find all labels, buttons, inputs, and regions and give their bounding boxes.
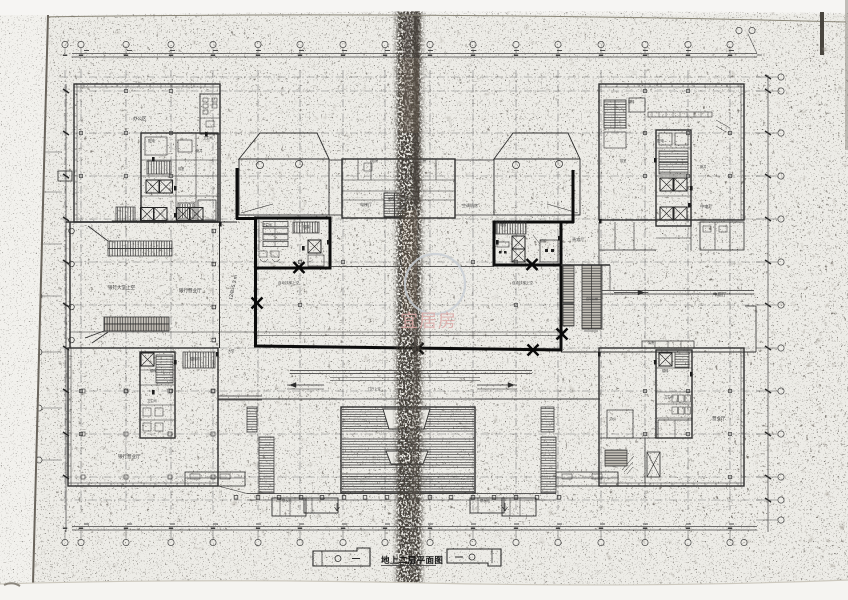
svg-text:楼梯: 楼梯 <box>540 238 547 243</box>
svg-text:自动扶梯上空: 自动扶梯上空 <box>512 280 533 285</box>
svg-text:地上二层平面图: 地上二层平面图 <box>381 555 443 565</box>
svg-text:楼梯: 楼梯 <box>303 224 310 229</box>
svg-text:电梯: 电梯 <box>500 222 507 227</box>
svg-text:楼梯间: 楼梯间 <box>190 356 200 361</box>
svg-text:银行营业厅: 银行营业厅 <box>118 453 141 460</box>
svg-text:楼梯: 楼梯 <box>150 368 157 373</box>
svg-text:电梯厅: 电梯厅 <box>360 201 372 207</box>
svg-text:卫生间: 卫生间 <box>664 394 674 399</box>
svg-text:银行营业厅: 银行营业厅 <box>179 287 202 294</box>
svg-text:自动扶梯: 自动扶梯 <box>586 296 598 301</box>
svg-text:宜居房: 宜居房 <box>400 311 457 331</box>
svg-text:库房: 库房 <box>648 340 654 345</box>
svg-text:配电: 配电 <box>148 138 155 143</box>
svg-text:办公区: 办公区 <box>133 115 147 122</box>
svg-text:自动扶梯上空: 自动扶梯上空 <box>278 280 299 285</box>
svg-text:办公: 办公 <box>610 416 617 421</box>
svg-text:机房: 机房 <box>372 158 378 163</box>
svg-text:前室: 前室 <box>178 166 184 171</box>
svg-text:楼梯: 楼梯 <box>662 368 669 373</box>
svg-text:银行大堂上空: 银行大堂上空 <box>108 284 135 291</box>
svg-text:卫生间: 卫生间 <box>262 222 272 227</box>
svg-text:门厅上空: 门厅上空 <box>368 386 381 391</box>
svg-text:大堂: 大堂 <box>228 348 234 353</box>
svg-text:卫生间: 卫生间 <box>203 135 213 140</box>
svg-text:楼梯: 楼梯 <box>628 99 635 104</box>
svg-text:管井: 管井 <box>196 148 202 153</box>
svg-text:前室: 前室 <box>620 158 626 163</box>
svg-text:贵宾厅: 贵宾厅 <box>572 236 585 243</box>
svg-text:空调机房: 空调机房 <box>462 202 478 208</box>
svg-text:配电: 配电 <box>657 138 665 143</box>
svg-text:卫生间: 卫生间 <box>147 398 157 403</box>
